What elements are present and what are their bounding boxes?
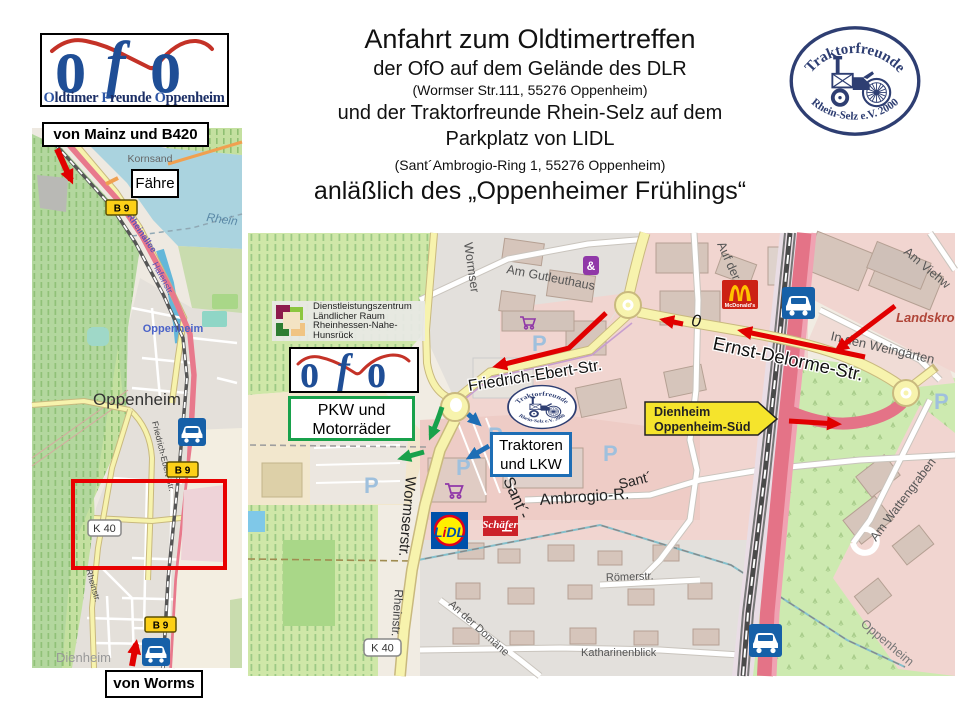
- svg-text:o: o: [300, 349, 319, 391]
- svg-text:o: o: [367, 349, 386, 391]
